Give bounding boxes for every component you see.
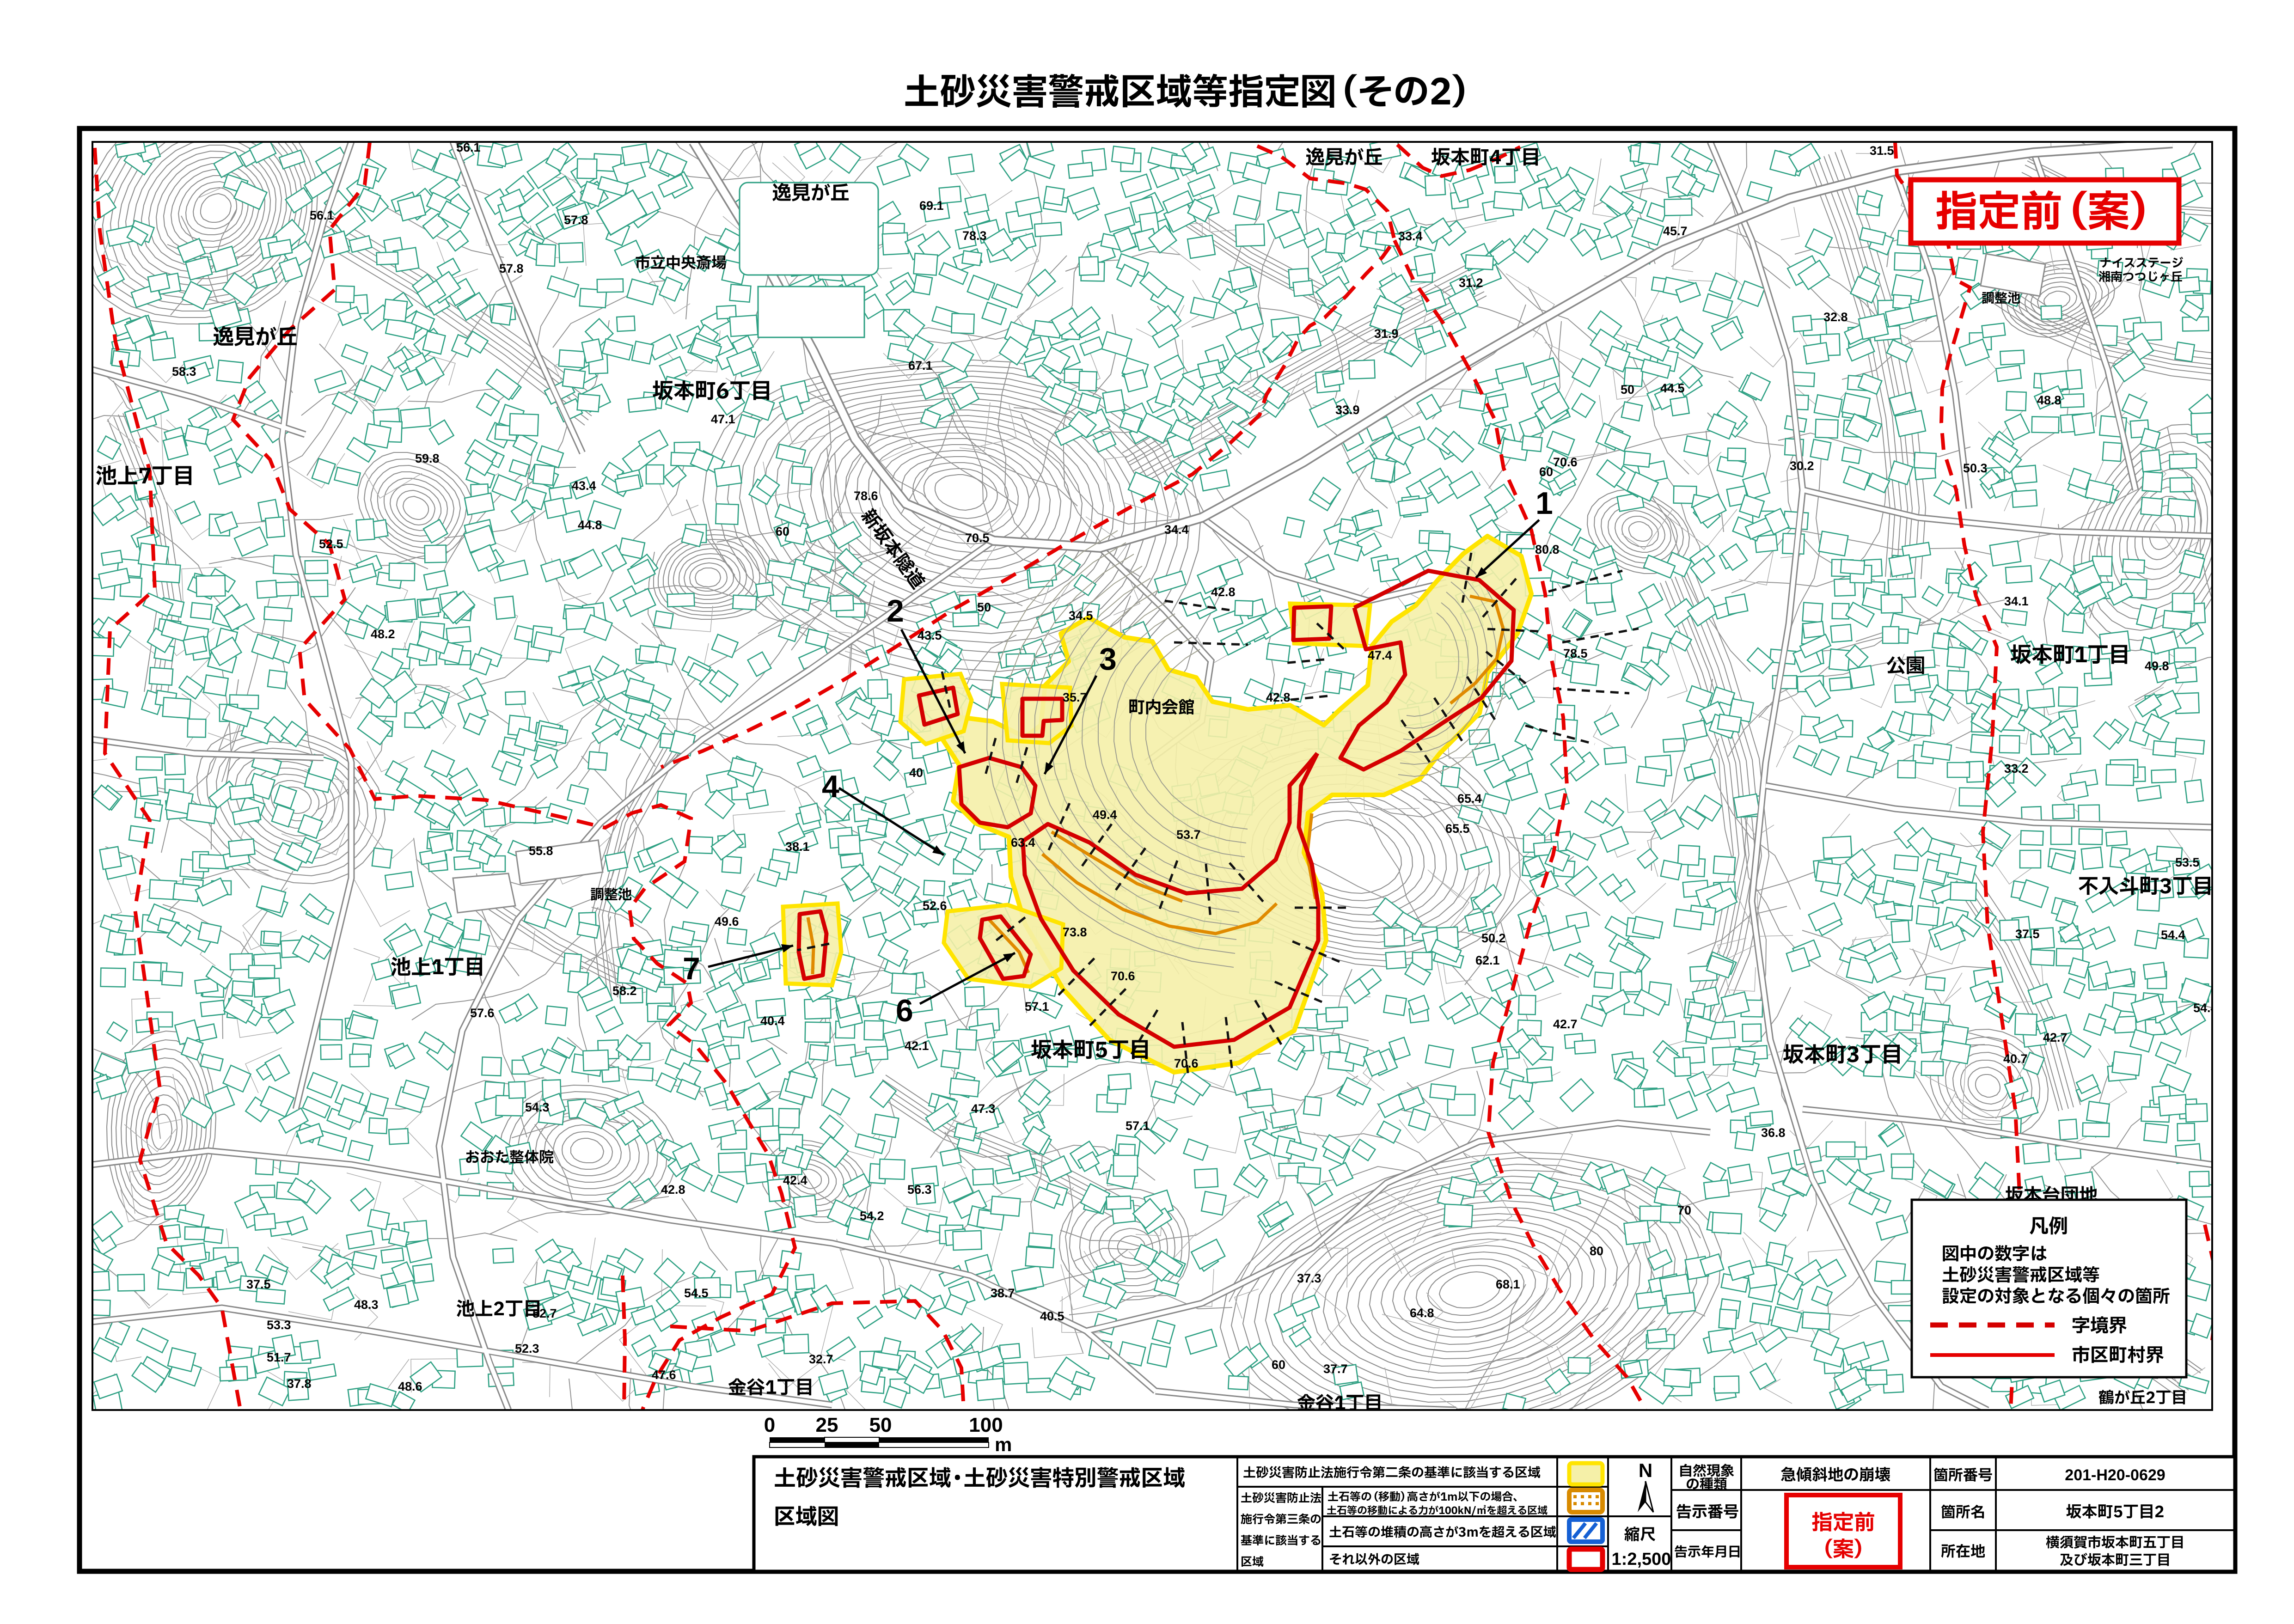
svg-text:62.1: 62.1 [1475, 953, 1500, 967]
svg-text:49.6: 49.6 [715, 915, 739, 928]
svg-text:53.5: 53.5 [2175, 855, 2200, 869]
svg-text:55.8: 55.8 [529, 844, 553, 858]
svg-text:38.7: 38.7 [991, 1286, 1015, 1300]
svg-text:59.8: 59.8 [415, 452, 440, 465]
svg-text:45.7: 45.7 [1663, 224, 1688, 238]
svg-text:40.4: 40.4 [760, 1014, 785, 1028]
svg-text:30.2: 30.2 [1790, 459, 1814, 473]
svg-text:33.4: 33.4 [1398, 229, 1423, 243]
svg-text:69.1: 69.1 [919, 199, 944, 213]
svg-text:50.2: 50.2 [1481, 931, 1506, 945]
svg-text:52.7: 52.7 [532, 1307, 557, 1320]
svg-text:40.5: 40.5 [1040, 1309, 1064, 1323]
svg-text:7: 7 [683, 951, 700, 986]
svg-text:37.8: 37.8 [287, 1377, 312, 1391]
svg-text:33.2: 33.2 [2004, 762, 2029, 775]
svg-text:60: 60 [776, 525, 789, 538]
svg-text:201-H20-0629: 201-H20-0629 [2065, 1466, 2165, 1484]
svg-text:1: 1 [1535, 486, 1553, 521]
svg-text:42.8: 42.8 [1211, 585, 1236, 599]
svg-text:58.2: 58.2 [612, 984, 637, 998]
svg-text:65.5: 65.5 [1445, 822, 1470, 836]
svg-text:37.5: 37.5 [2015, 927, 2040, 941]
svg-text:57.8: 57.8 [564, 213, 588, 227]
svg-text:56.3: 56.3 [907, 1183, 932, 1197]
svg-text:42.8: 42.8 [1266, 690, 1291, 704]
svg-text:52.6: 52.6 [923, 899, 947, 913]
svg-text:78.5: 78.5 [1563, 647, 1588, 660]
svg-text:57.1: 57.1 [1126, 1119, 1150, 1133]
svg-text:47.6: 47.6 [652, 1368, 676, 1382]
svg-text:42.4: 42.4 [783, 1173, 807, 1187]
svg-text:70.6: 70.6 [1553, 455, 1578, 469]
svg-text:50: 50 [977, 600, 991, 614]
svg-text:1:2,500: 1:2,500 [1612, 1550, 1671, 1569]
svg-text:54.4: 54.4 [2161, 928, 2185, 942]
svg-text:50: 50 [1621, 383, 1634, 397]
svg-text:25: 25 [816, 1414, 838, 1436]
svg-text:80.8: 80.8 [1535, 543, 1560, 556]
svg-text:37.7: 37.7 [1323, 1362, 1348, 1376]
svg-text:65.4: 65.4 [1457, 792, 1482, 806]
svg-text:52.3: 52.3 [515, 1342, 539, 1355]
svg-text:43.5: 43.5 [918, 629, 942, 642]
svg-text:37.3: 37.3 [1297, 1271, 1321, 1285]
svg-text:42.7: 42.7 [2043, 1031, 2068, 1044]
svg-text:32.8: 32.8 [1823, 310, 1848, 324]
svg-text:52.5: 52.5 [319, 537, 343, 551]
svg-text:42.8: 42.8 [661, 1183, 685, 1197]
svg-text:67.1: 67.1 [908, 359, 933, 372]
svg-text:57.6: 57.6 [470, 1006, 495, 1020]
svg-text:57.1: 57.1 [1025, 1000, 1049, 1013]
svg-text:54.2: 54.2 [860, 1209, 884, 1223]
svg-text:48.8: 48.8 [2037, 393, 2062, 407]
svg-text:38.1: 38.1 [785, 840, 810, 854]
svg-text:100: 100 [969, 1414, 1003, 1436]
svg-text:60: 60 [1272, 1358, 1285, 1372]
svg-text:70.6: 70.6 [1174, 1056, 1199, 1070]
svg-text:42.1: 42.1 [905, 1039, 929, 1053]
svg-text:6: 6 [896, 993, 913, 1028]
svg-text:68.1: 68.1 [1496, 1277, 1520, 1291]
svg-text:42.7: 42.7 [1553, 1017, 1578, 1031]
svg-text:53.7: 53.7 [1176, 828, 1201, 842]
svg-text:47.3: 47.3 [971, 1102, 996, 1116]
svg-text:54.3: 54.3 [525, 1100, 550, 1114]
svg-text:34.5: 34.5 [1069, 609, 1093, 623]
svg-text:36.8: 36.8 [1761, 1126, 1786, 1140]
svg-text:40.7: 40.7 [2003, 1052, 2028, 1066]
svg-text:33.9: 33.9 [1335, 403, 1360, 417]
svg-text:56.1: 56.1 [310, 208, 334, 222]
svg-text:54.5: 54.5 [684, 1286, 709, 1300]
svg-text:50: 50 [869, 1414, 892, 1436]
svg-text:48.2: 48.2 [371, 627, 395, 641]
svg-text:0: 0 [764, 1414, 775, 1436]
svg-text:4: 4 [822, 769, 839, 804]
svg-text:58.3: 58.3 [172, 365, 196, 379]
svg-text:60: 60 [1539, 465, 1553, 479]
svg-text:47.4: 47.4 [1368, 648, 1392, 662]
svg-text:70: 70 [1677, 1203, 1691, 1217]
svg-text:50.3: 50.3 [1963, 461, 1988, 475]
svg-text:40: 40 [909, 766, 923, 780]
svg-text:47.1: 47.1 [711, 412, 735, 426]
svg-text:70.5: 70.5 [965, 531, 990, 545]
svg-text:78.3: 78.3 [962, 229, 987, 243]
svg-text:44.5: 44.5 [1660, 381, 1685, 395]
svg-text:51.7: 51.7 [267, 1350, 291, 1364]
svg-text:34.4: 34.4 [1164, 523, 1189, 537]
svg-text:49.4: 49.4 [1093, 808, 1117, 822]
svg-text:57.8: 57.8 [499, 262, 524, 275]
svg-text:31.5: 31.5 [1870, 144, 1894, 158]
svg-text:N: N [1639, 1459, 1652, 1481]
svg-text:3: 3 [1099, 641, 1117, 677]
svg-text:31.9: 31.9 [1374, 327, 1399, 341]
svg-text:31.2: 31.2 [1459, 276, 1483, 290]
svg-text:64.8: 64.8 [1410, 1306, 1434, 1320]
svg-text:37.5: 37.5 [246, 1277, 271, 1291]
svg-text:m: m [995, 1434, 1012, 1455]
svg-text:34.1: 34.1 [2004, 594, 2029, 608]
svg-text:53.3: 53.3 [267, 1318, 291, 1332]
svg-text:48.6: 48.6 [398, 1380, 422, 1393]
svg-text:80: 80 [1590, 1244, 1603, 1258]
svg-text:78.6: 78.6 [854, 489, 878, 503]
svg-text:32.7: 32.7 [809, 1352, 833, 1366]
svg-text:44.8: 44.8 [578, 518, 602, 532]
svg-text:63.4: 63.4 [1011, 836, 1035, 849]
svg-text:48.3: 48.3 [354, 1298, 379, 1312]
svg-text:70.6: 70.6 [1111, 969, 1135, 983]
svg-text:43.4: 43.4 [572, 479, 596, 493]
svg-text:73.8: 73.8 [1063, 925, 1087, 939]
svg-text:49.8: 49.8 [2145, 659, 2169, 673]
svg-text:2: 2 [887, 593, 904, 629]
